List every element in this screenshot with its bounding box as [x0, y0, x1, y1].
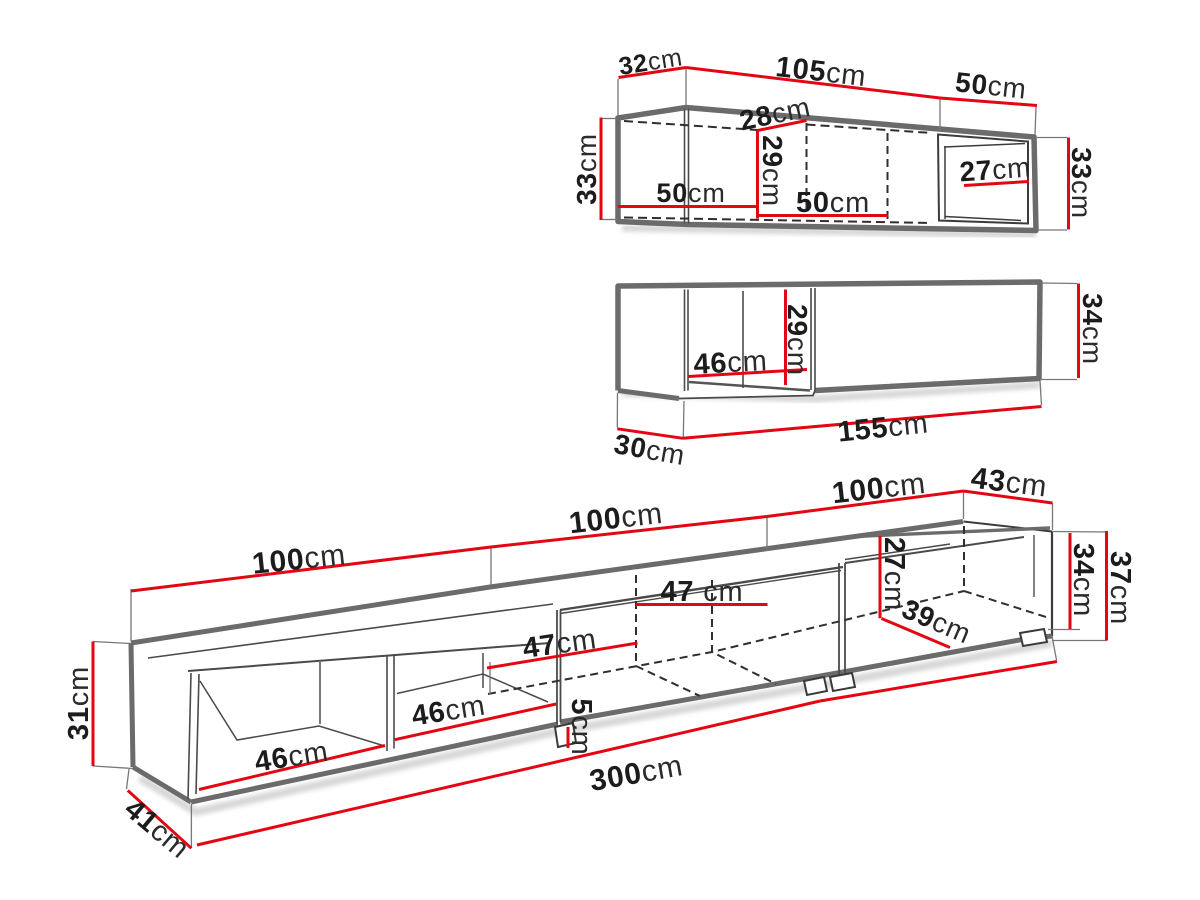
svg-text:33cm: 33cm: [1066, 147, 1097, 219]
svg-text:29cm: 29cm: [782, 304, 813, 376]
svg-text:27cm: 27cm: [878, 537, 910, 611]
svg-text:47 cm: 47 cm: [661, 576, 744, 608]
svg-text:50cm: 50cm: [656, 178, 725, 208]
svg-text:37cm: 37cm: [1104, 551, 1136, 625]
svg-text:34cm: 34cm: [1077, 293, 1108, 365]
svg-text:29cm: 29cm: [757, 135, 788, 207]
svg-text:31cm: 31cm: [63, 666, 95, 740]
svg-text:27cm: 27cm: [958, 152, 1032, 188]
svg-text:33cm: 33cm: [571, 133, 602, 205]
svg-text:5cm: 5cm: [565, 698, 597, 755]
svg-text:34cm: 34cm: [1067, 543, 1099, 617]
svg-text:50cm: 50cm: [796, 187, 870, 219]
svg-text:46cm: 46cm: [693, 345, 769, 381]
